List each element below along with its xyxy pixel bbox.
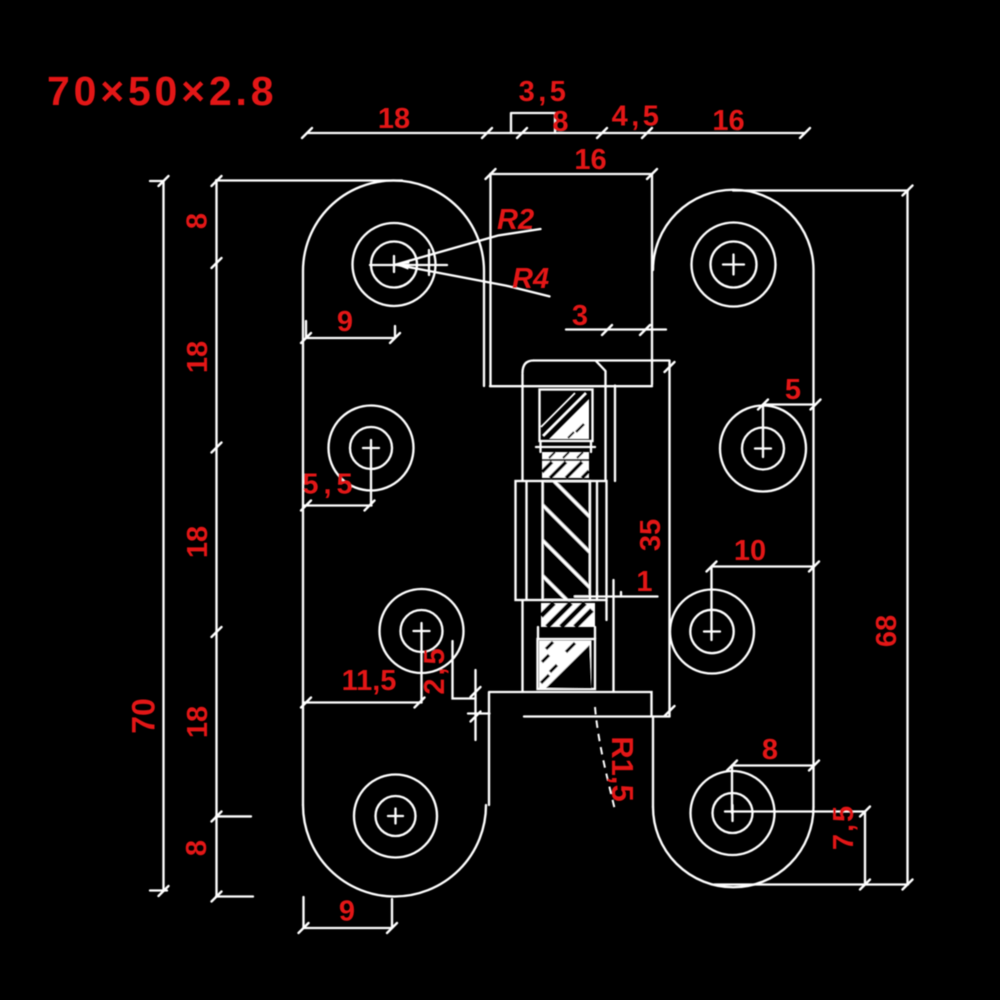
svg-text:35: 35 — [635, 519, 667, 551]
svg-text:2,5: 2,5 — [419, 645, 451, 694]
svg-text:5,5: 5,5 — [302, 469, 357, 501]
svg-text:3: 3 — [572, 300, 588, 332]
svg-text:18: 18 — [182, 526, 214, 558]
svg-text:4,5: 4,5 — [612, 101, 663, 133]
svg-text:R2: R2 — [497, 204, 534, 236]
svg-text:70×50×2.8: 70×50×2.8 — [47, 68, 277, 114]
svg-text:1: 1 — [636, 566, 652, 598]
svg-text:18: 18 — [182, 706, 214, 738]
svg-text:9: 9 — [339, 896, 355, 928]
svg-text:10: 10 — [734, 535, 766, 567]
svg-text:9: 9 — [337, 306, 353, 338]
svg-text:R4: R4 — [512, 263, 549, 295]
svg-text:5: 5 — [785, 374, 801, 406]
svg-text:8: 8 — [552, 106, 568, 138]
svg-text:8: 8 — [762, 734, 778, 766]
svg-text:R1,5: R1,5 — [605, 736, 640, 801]
svg-text:3,5: 3,5 — [519, 76, 570, 108]
svg-text:70: 70 — [126, 698, 162, 734]
svg-text:11,5: 11,5 — [342, 665, 397, 697]
svg-text:16: 16 — [712, 105, 744, 137]
svg-text:68: 68 — [871, 615, 903, 647]
svg-text:18: 18 — [378, 103, 410, 135]
svg-text:7,5: 7,5 — [828, 804, 860, 850]
svg-text:8: 8 — [181, 840, 213, 856]
svg-text:16: 16 — [574, 144, 606, 176]
svg-text:8: 8 — [182, 213, 214, 229]
svg-text:18: 18 — [182, 341, 214, 373]
